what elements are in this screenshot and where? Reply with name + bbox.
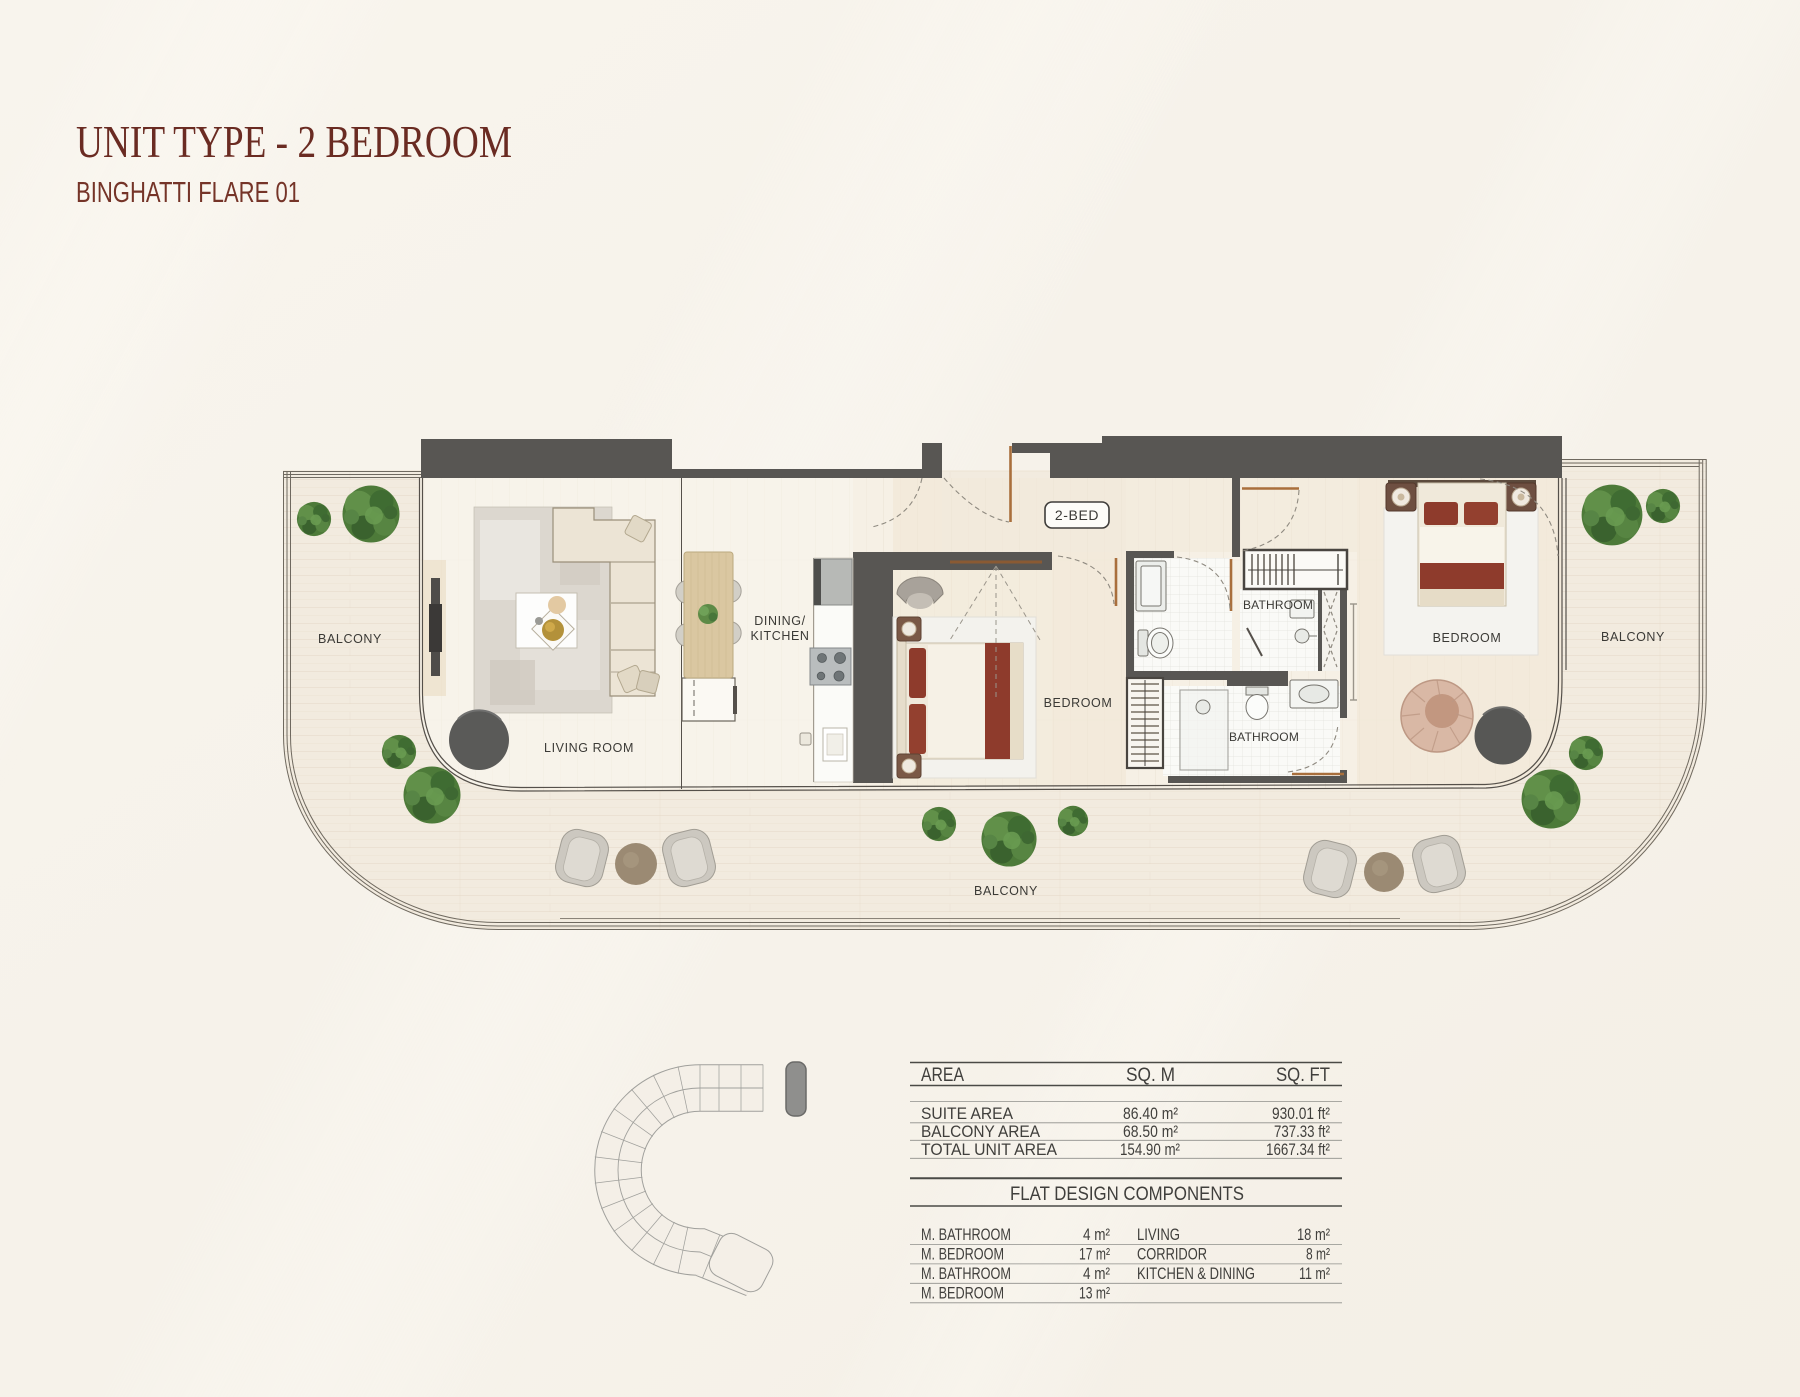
svg-text:M. BATHROOM: M. BATHROOM bbox=[921, 1226, 1011, 1244]
svg-text:17 m²: 17 m² bbox=[1079, 1246, 1110, 1264]
svg-text:DINING/: DINING/ bbox=[754, 614, 805, 628]
svg-text:737.33 ft²: 737.33 ft² bbox=[1274, 1123, 1330, 1141]
svg-text:KITCHEN & DINING: KITCHEN & DINING bbox=[1137, 1265, 1255, 1283]
svg-text:M. BATHROOM: M. BATHROOM bbox=[921, 1265, 1011, 1283]
svg-text:M. BEDROOM: M. BEDROOM bbox=[921, 1246, 1004, 1264]
svg-text:8 m²: 8 m² bbox=[1306, 1246, 1330, 1264]
svg-text:KITCHEN: KITCHEN bbox=[750, 629, 809, 643]
svg-text:13 m²: 13 m² bbox=[1079, 1285, 1110, 1303]
svg-text:68.50 m²: 68.50 m² bbox=[1123, 1123, 1178, 1141]
svg-text:SQ. M: SQ. M bbox=[1126, 1065, 1175, 1086]
svg-text:LIVING ROOM: LIVING ROOM bbox=[544, 741, 634, 755]
svg-text:BALCONY: BALCONY bbox=[974, 884, 1038, 898]
svg-text:LIVING: LIVING bbox=[1137, 1226, 1180, 1244]
svg-text:M. BEDROOM: M. BEDROOM bbox=[921, 1285, 1004, 1303]
svg-text:BALCONY: BALCONY bbox=[1601, 630, 1665, 644]
svg-text:BATHROOM: BATHROOM bbox=[1243, 598, 1313, 612]
svg-text:930.01 ft²: 930.01 ft² bbox=[1272, 1105, 1330, 1123]
svg-text:BEDROOM: BEDROOM bbox=[1044, 696, 1113, 710]
svg-text:CORRIDOR: CORRIDOR bbox=[1137, 1246, 1207, 1264]
svg-text:4 m²: 4 m² bbox=[1083, 1226, 1110, 1244]
svg-text:1667.34 ft²: 1667.34 ft² bbox=[1266, 1141, 1330, 1159]
svg-text:2-BED: 2-BED bbox=[1055, 507, 1099, 523]
svg-text:BATHROOM: BATHROOM bbox=[1229, 730, 1299, 744]
svg-text:18 m²: 18 m² bbox=[1297, 1226, 1330, 1244]
svg-text:11 m²: 11 m² bbox=[1299, 1265, 1330, 1283]
svg-text:BALCONY: BALCONY bbox=[318, 632, 382, 646]
svg-text:SUITE AREA: SUITE AREA bbox=[921, 1105, 1013, 1123]
svg-text:4 m²: 4 m² bbox=[1083, 1265, 1110, 1283]
svg-text:FLAT DESIGN COMPONENTS: FLAT DESIGN COMPONENTS bbox=[1010, 1184, 1244, 1205]
svg-text:BINGHATTI FLARE 01: BINGHATTI FLARE 01 bbox=[76, 177, 300, 209]
svg-text:BEDROOM: BEDROOM bbox=[1433, 631, 1502, 645]
svg-text:BALCONY AREA: BALCONY AREA bbox=[921, 1123, 1040, 1141]
svg-text:AREA: AREA bbox=[921, 1065, 964, 1086]
svg-text:SQ. FT: SQ. FT bbox=[1276, 1065, 1330, 1086]
svg-text:UNIT TYPE - 2 BEDROOM: UNIT TYPE - 2 BEDROOM bbox=[76, 116, 512, 167]
svg-text:86.40 m²: 86.40 m² bbox=[1123, 1105, 1178, 1123]
svg-text:154.90 m²: 154.90 m² bbox=[1120, 1141, 1180, 1159]
svg-text:TOTAL UNIT AREA: TOTAL UNIT AREA bbox=[921, 1141, 1057, 1159]
